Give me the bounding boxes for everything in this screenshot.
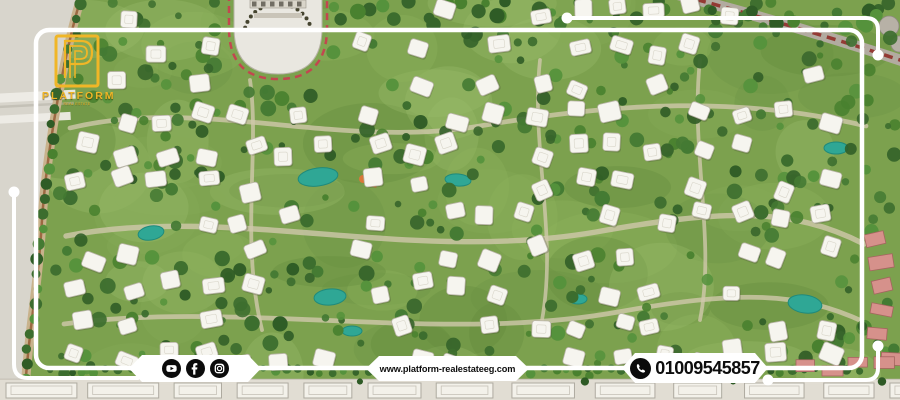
website-banner[interactable]: www.platform-realestateeg.com [366,356,529,381]
youtube-icon[interactable] [162,359,181,378]
instagram-icon[interactable] [210,359,229,378]
phone-number[interactable]: 01009545857 [655,358,760,379]
brand-logo: PLATFORM REAL ESTATE [42,34,112,108]
master-plan-map [0,0,900,400]
website-url[interactable]: www.platform-realestateeg.com [380,364,516,374]
whatsapp-icon [630,358,651,379]
facebook-icon[interactable] [186,359,205,378]
platform-logo-icon [54,34,100,88]
social-banner [129,355,261,382]
brand-name: PLATFORM [42,90,112,102]
phone-banner[interactable]: 01009545857 [622,353,768,383]
brand-tagline: REAL ESTATE [52,102,102,106]
real-estate-ad-banner: PLATFORM REAL ESTATE www.platform-reales… [0,0,900,400]
